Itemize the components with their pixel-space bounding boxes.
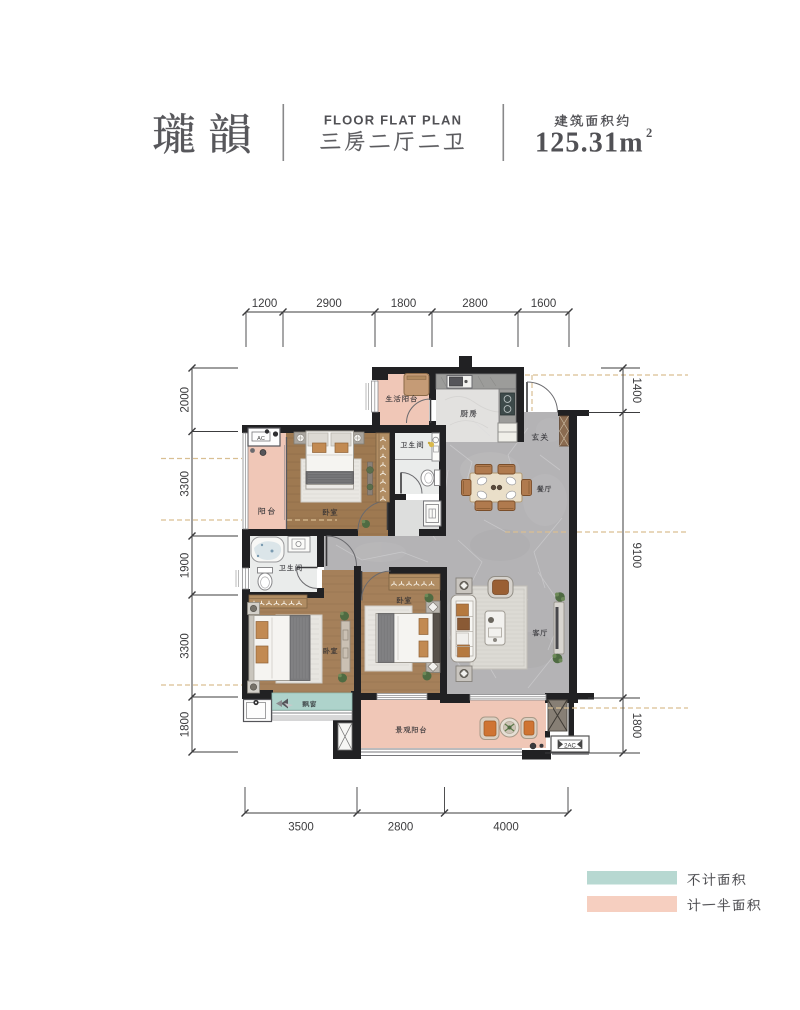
svg-text:2800: 2800 xyxy=(388,822,414,834)
svg-text:9100: 9100 xyxy=(630,543,642,569)
svg-text:1800: 1800 xyxy=(391,298,417,310)
svg-text:3300: 3300 xyxy=(180,633,192,659)
svg-text:2000: 2000 xyxy=(180,387,192,413)
svg-text:2800: 2800 xyxy=(462,298,488,310)
svg-text:3300: 3300 xyxy=(180,471,192,497)
svg-text:1900: 1900 xyxy=(180,553,192,579)
svg-text:1400: 1400 xyxy=(630,378,642,404)
svg-text:2900: 2900 xyxy=(316,298,342,310)
svg-text:AC: AC xyxy=(257,436,265,442)
svg-text:1800: 1800 xyxy=(180,712,192,738)
svg-text:1600: 1600 xyxy=(531,298,557,310)
svg-text:FLOOR FLAT PLAN: FLOOR FLAT PLAN xyxy=(324,113,462,128)
svg-text:2AC: 2AC xyxy=(564,744,576,750)
svg-text:2: 2 xyxy=(646,126,652,140)
svg-text:3500: 3500 xyxy=(288,822,314,834)
svg-text:1800: 1800 xyxy=(630,713,642,739)
svg-text:1200: 1200 xyxy=(252,298,278,310)
svg-text:4000: 4000 xyxy=(493,822,519,834)
svg-text:125.31m: 125.31m xyxy=(535,128,644,159)
